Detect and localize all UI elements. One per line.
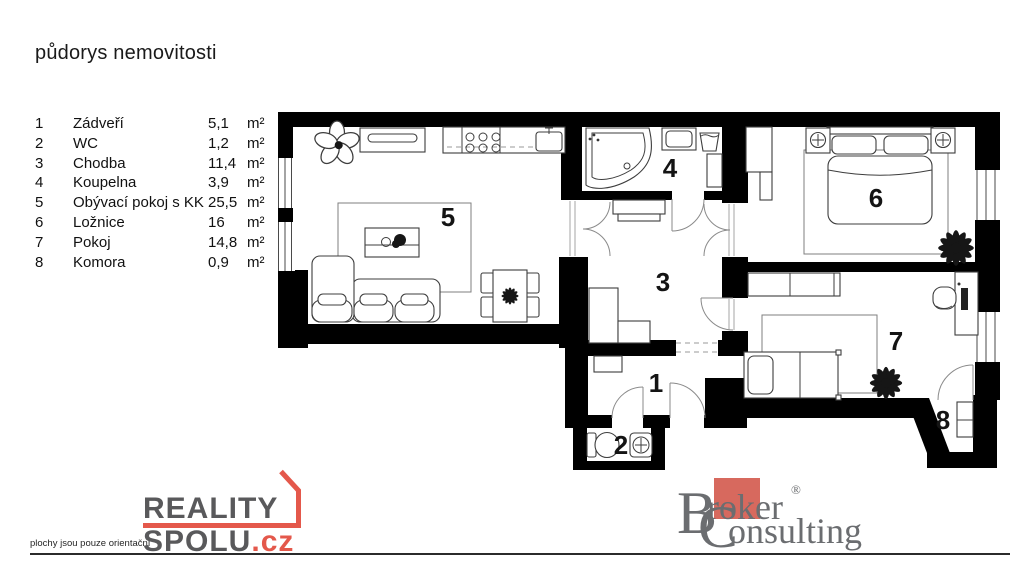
dining-table-icon (481, 270, 539, 322)
room-number: 1 (35, 114, 73, 134)
area-unit: m² (247, 134, 271, 154)
area-unit: m² (247, 233, 271, 253)
room-5-living-room: 5 (312, 121, 565, 322)
room-area: 3,9 (208, 173, 247, 193)
nightstand-icon (931, 128, 955, 153)
legend-row: 5 Obývací pokoj s KK 25,5 m² (35, 193, 271, 213)
room-area: 16 (208, 213, 247, 233)
hallway-cabinet-icon (589, 288, 650, 343)
room-name: Pokoj (73, 233, 208, 253)
room-name: Chodba (73, 154, 208, 174)
room-label-8: 8 (936, 405, 950, 435)
area-unit: m² (247, 173, 271, 193)
room-label-3: 3 (656, 267, 670, 297)
plant-icon (870, 367, 902, 399)
shelf-icon (957, 402, 973, 437)
area-unit: m² (247, 213, 271, 233)
wardrobe-icon (746, 127, 772, 200)
wc-sink-icon (630, 433, 652, 457)
room-number: 2 (35, 134, 73, 154)
legend-row: 7 Pokoj 14,8 m² (35, 233, 271, 253)
page-title: půdorys nemovitosti (35, 42, 217, 65)
room-label-7: 7 (889, 326, 903, 356)
room-7-room: 7 (744, 272, 978, 400)
bathroom-sink-icon (662, 128, 696, 150)
entry-cabinet-icon (594, 356, 622, 372)
door-icon (701, 298, 748, 331)
shelf-icon (613, 200, 665, 221)
legend-row: 3 Chodba 11,4 m² (35, 154, 271, 174)
wardrobe-icon (748, 273, 840, 296)
window-icon (973, 170, 1000, 220)
room-name: Zádveří (73, 114, 208, 134)
floor-plan: 5 4 3 (278, 108, 1000, 470)
room-area: 1,2 (208, 134, 247, 154)
room-number: 5 (35, 193, 73, 213)
room-label-5: 5 (441, 202, 455, 232)
window-icon (278, 222, 295, 271)
door-icon (558, 200, 610, 257)
bathroom-cabinet-icon (707, 154, 722, 187)
legend-row: 2 WC 1,2 m² (35, 134, 271, 154)
registered-mark-icon: ® (791, 483, 801, 496)
room-label-6: 6 (869, 183, 883, 213)
passage-dashed (676, 340, 718, 356)
room-label-2: 2 (614, 430, 628, 460)
plant-icon (938, 230, 974, 266)
nightstand-icon (806, 128, 830, 153)
area-unit: m² (247, 253, 271, 273)
window-icon (278, 158, 295, 208)
area-unit: m² (247, 193, 271, 213)
broker-word-onsulting: onsulting (728, 513, 862, 549)
room-6-bedroom: 6 (746, 127, 974, 266)
room-4-bathroom: 4 (586, 128, 722, 188)
room-number: 8 (35, 253, 73, 273)
area-unit: m² (247, 154, 271, 174)
room-number: 6 (35, 213, 73, 233)
room-area: 11,4 (208, 154, 247, 174)
legend-row: 1 Zádveří 5,1 m² (35, 114, 271, 134)
desk-icon (955, 272, 978, 335)
footer-divider (30, 553, 1010, 555)
room-2-wc: 2 (587, 430, 652, 460)
room-8-storage: 8 (936, 402, 973, 437)
sofa-icon (312, 256, 440, 322)
room-label-4: 4 (663, 153, 678, 183)
room-area: 25,5 (208, 193, 247, 213)
room-name: Koupelna (73, 173, 208, 193)
room-area: 0,9 (208, 253, 247, 273)
laundry-basket-icon (700, 133, 719, 151)
room-name: Ložnice (73, 213, 208, 233)
bathtub-icon (586, 128, 651, 188)
room-name: WC (73, 134, 208, 154)
legend-row: 4 Koupelna 3,9 m² (35, 173, 271, 193)
door-icon (938, 365, 973, 400)
room-label-1: 1 (649, 368, 663, 398)
reality-logo-word1: REALITY (143, 494, 278, 524)
door-icon (670, 383, 705, 428)
room-1-entrance: 1 (594, 356, 663, 398)
legend-row: 8 Komora 0,9 m² (35, 253, 271, 273)
disclaimer-text: plochy jsou pouze orientační (30, 538, 150, 549)
room-number: 7 (35, 233, 73, 253)
plant-icon (313, 121, 361, 167)
room-area: 14,8 (208, 233, 247, 253)
door-icon (672, 190, 704, 231)
room-number: 4 (35, 173, 73, 193)
room-legend: 1 Zádveří 5,1 m² 2 WC 1,2 m² 3 Chodba 11… (35, 114, 271, 272)
desk-chair-icon (933, 287, 956, 309)
door-icon (612, 387, 643, 428)
coffee-table-icon (365, 228, 419, 257)
room-name: Obývací pokoj s KK (73, 193, 208, 213)
legend-row: 6 Ložnice 16 m² (35, 213, 271, 233)
room-name: Komora (73, 253, 208, 273)
door-icon (704, 203, 748, 257)
area-unit: m² (247, 114, 271, 134)
bed-icon (744, 350, 841, 400)
kitchen-counter-icon (443, 127, 565, 153)
room-number: 3 (35, 154, 73, 174)
room-area: 5,1 (208, 114, 247, 134)
sideboard-icon (360, 128, 425, 152)
